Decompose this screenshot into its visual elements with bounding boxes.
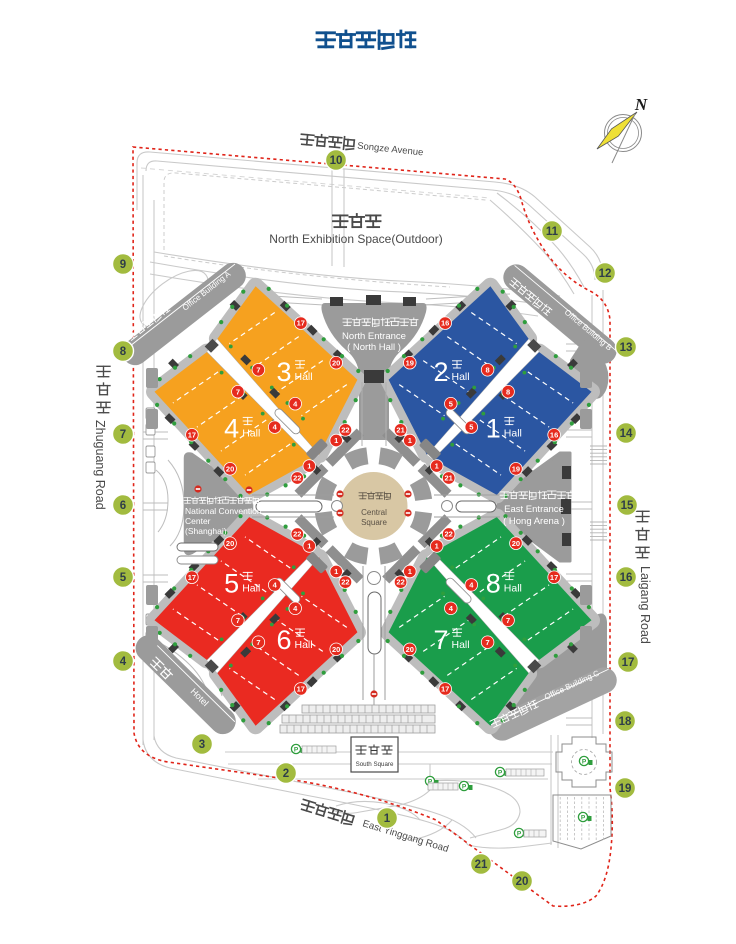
svg-text:5: 5 [449, 399, 453, 408]
svg-text:1: 1 [307, 542, 311, 551]
svg-text:8: 8 [486, 365, 490, 374]
svg-text:East Entrance: East Entrance [504, 504, 564, 515]
svg-text:Hall: Hall [295, 371, 313, 383]
svg-text:1: 1 [384, 813, 391, 825]
svg-text:2: 2 [433, 357, 448, 387]
svg-text:1: 1 [307, 462, 311, 471]
svg-text:7: 7 [236, 387, 240, 396]
svg-text:17: 17 [622, 657, 635, 669]
svg-text:17: 17 [297, 319, 305, 328]
svg-text:5: 5 [469, 423, 473, 432]
svg-text:3: 3 [199, 739, 205, 751]
svg-text:11: 11 [546, 226, 559, 238]
svg-text:Hall: Hall [452, 371, 470, 383]
svg-text:22: 22 [396, 578, 404, 587]
svg-text:20: 20 [226, 464, 234, 473]
svg-text:17: 17 [550, 573, 558, 582]
svg-text:16: 16 [441, 319, 449, 328]
svg-text:Laigang Road: Laigang Road [638, 566, 652, 644]
svg-text:19: 19 [619, 783, 632, 795]
svg-text:5: 5 [120, 572, 127, 584]
svg-text:(Shanghai): (Shanghai) [185, 526, 227, 536]
svg-text:P: P [517, 831, 522, 838]
svg-text:22: 22 [293, 474, 301, 483]
svg-text:1: 1 [435, 542, 439, 551]
svg-text:North Entrance: North Entrance [342, 331, 406, 342]
svg-text:14: 14 [620, 428, 633, 440]
svg-text:20: 20 [332, 645, 340, 654]
svg-text:6: 6 [120, 500, 126, 512]
svg-text:7: 7 [120, 429, 126, 441]
svg-text:20: 20 [516, 876, 529, 888]
svg-text:4: 4 [120, 656, 127, 668]
svg-text:21: 21 [445, 474, 453, 483]
svg-text:22: 22 [445, 530, 453, 539]
svg-text:Hall: Hall [242, 583, 260, 595]
svg-text:4: 4 [224, 414, 239, 444]
svg-text:Hall: Hall [504, 583, 522, 595]
svg-text:10: 10 [330, 155, 343, 167]
svg-text:National Convention: National Convention [185, 506, 262, 516]
svg-text:Square: Square [361, 518, 387, 527]
svg-text:21: 21 [396, 426, 404, 435]
svg-text:8: 8 [506, 387, 510, 396]
svg-text:21: 21 [475, 859, 488, 871]
svg-text:Center: Center [185, 516, 211, 526]
svg-text:Hall: Hall [242, 428, 260, 440]
svg-text:17: 17 [441, 685, 449, 694]
svg-text:P: P [581, 815, 586, 822]
svg-text:7: 7 [236, 616, 240, 625]
svg-text:1: 1 [334, 567, 338, 576]
svg-text:17: 17 [297, 685, 305, 694]
svg-text:1: 1 [408, 567, 412, 576]
svg-text:( Hong Arena ): ( Hong Arena ) [503, 516, 565, 527]
svg-text:15: 15 [621, 500, 634, 512]
svg-text:North Exhibition Space(Outdoor: North Exhibition Space(Outdoor) [269, 232, 442, 246]
svg-text:16: 16 [550, 430, 558, 439]
svg-text:3: 3 [276, 357, 291, 387]
svg-text:22: 22 [341, 426, 349, 435]
svg-text:12: 12 [599, 268, 612, 280]
svg-text:22: 22 [293, 530, 301, 539]
svg-text:South Square: South Square [356, 761, 394, 768]
svg-text:9: 9 [120, 259, 126, 271]
svg-text:1: 1 [334, 436, 338, 445]
svg-text:7: 7 [256, 638, 260, 647]
svg-text:Central: Central [361, 508, 387, 517]
svg-text:17: 17 [188, 430, 196, 439]
svg-text:20: 20 [406, 645, 414, 654]
svg-text:1: 1 [486, 414, 501, 444]
svg-text:17: 17 [188, 573, 196, 582]
svg-text:5: 5 [224, 569, 239, 599]
svg-text:P: P [462, 784, 467, 791]
svg-text:( North Hall ): ( North Hall ) [347, 342, 401, 353]
svg-text:1: 1 [435, 462, 439, 471]
svg-text:19: 19 [512, 464, 520, 473]
svg-text:7: 7 [486, 638, 490, 647]
svg-text:20: 20 [512, 539, 520, 548]
svg-text:2: 2 [283, 768, 289, 780]
svg-text:8: 8 [486, 569, 501, 599]
svg-text:7: 7 [433, 625, 448, 655]
svg-text:18: 18 [619, 716, 632, 728]
svg-text:19: 19 [406, 358, 414, 367]
svg-text:8: 8 [120, 346, 127, 358]
svg-text:Zhuguang Road: Zhuguang Road [93, 420, 107, 510]
svg-text:N: N [634, 95, 648, 114]
svg-text:Hall: Hall [452, 639, 470, 651]
svg-text:P: P [294, 747, 299, 754]
svg-text:20: 20 [332, 358, 340, 367]
svg-text:6: 6 [276, 625, 291, 655]
svg-text:P: P [498, 770, 503, 777]
svg-text:Hall: Hall [295, 639, 313, 651]
svg-text:Hall: Hall [504, 428, 522, 440]
svg-text:P: P [582, 759, 587, 766]
svg-text:13: 13 [620, 342, 633, 354]
svg-text:22: 22 [341, 578, 349, 587]
svg-text:16: 16 [620, 572, 633, 584]
svg-text:7: 7 [256, 365, 260, 374]
svg-text:7: 7 [506, 616, 510, 625]
svg-text:1: 1 [408, 436, 412, 445]
svg-text:20: 20 [226, 539, 234, 548]
